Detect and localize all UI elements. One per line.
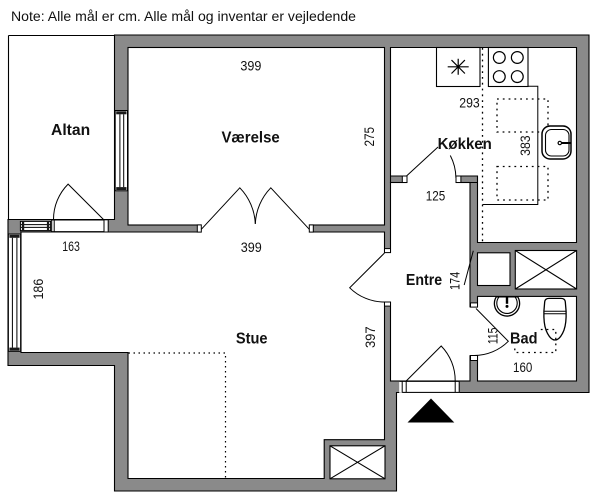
svg-text:Altan: Altan	[51, 122, 90, 139]
svg-text:383: 383	[517, 135, 533, 156]
svg-text:275: 275	[361, 127, 377, 147]
svg-text:Værelse: Værelse	[221, 130, 279, 147]
svg-text:Bad: Bad	[510, 330, 538, 347]
svg-text:125: 125	[426, 187, 446, 203]
svg-text:399: 399	[240, 57, 261, 73]
svg-text:Køkken: Køkken	[438, 136, 492, 153]
svg-text:186: 186	[30, 279, 46, 300]
svg-text:399: 399	[241, 239, 262, 255]
svg-text:160: 160	[513, 359, 532, 375]
svg-text:Entre: Entre	[406, 272, 442, 289]
svg-text:163: 163	[62, 238, 80, 254]
svg-text:397: 397	[362, 326, 378, 348]
svg-text:293: 293	[459, 95, 480, 111]
svg-text:Stue: Stue	[236, 330, 268, 347]
svg-text:174: 174	[447, 272, 463, 290]
svg-text:115: 115	[484, 327, 500, 344]
svg-text:Note: Alle mål er cm. Alle mål: Note: Alle mål er cm. Alle mål og invent…	[11, 8, 356, 24]
